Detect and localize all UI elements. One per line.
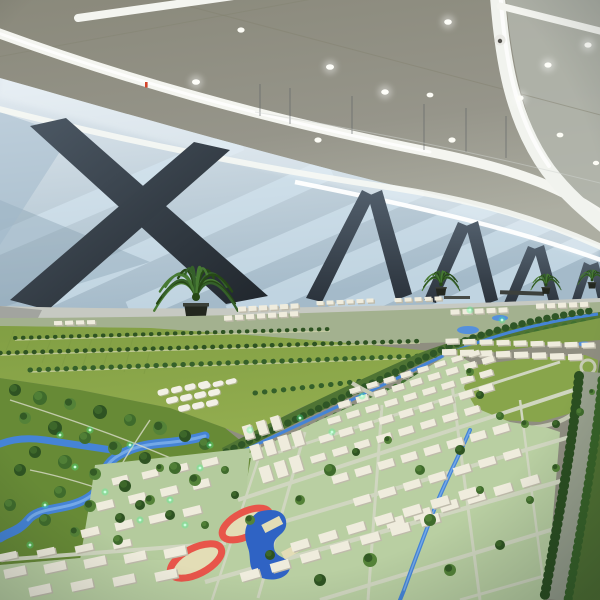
vignette — [0, 0, 600, 600]
scene-canvas — [0, 0, 600, 600]
exhibition-hall-photo — [0, 0, 600, 600]
